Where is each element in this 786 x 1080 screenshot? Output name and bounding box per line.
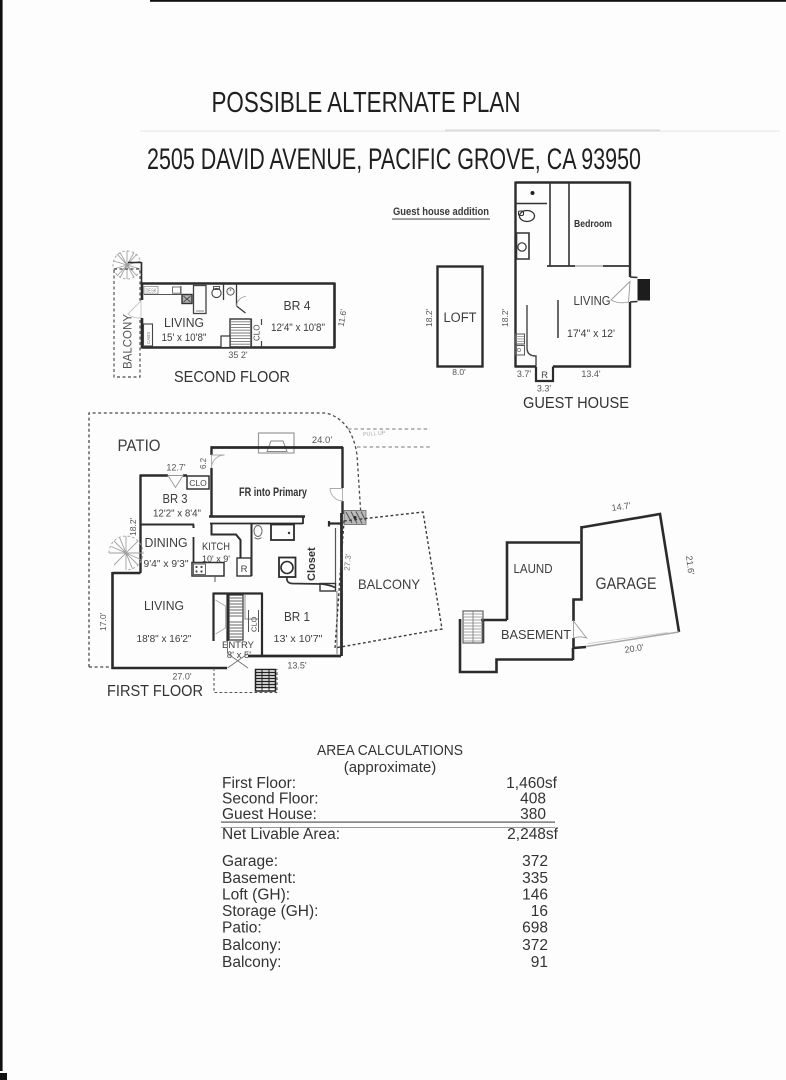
svg-text:Patio:: Patio: bbox=[222, 920, 262, 937]
svg-text:FR into Primary: FR into Primary bbox=[239, 487, 307, 499]
svg-text:FIRST FLOOR: FIRST FLOOR bbox=[107, 683, 203, 700]
svg-text:6.2: 6.2 bbox=[199, 457, 208, 469]
svg-text:LIVING: LIVING bbox=[144, 599, 184, 613]
svg-text:2505 DAVID AVENUE, PACIFIC GRO: 2505 DAVID AVENUE, PACIFIC GROVE, CA 939… bbox=[147, 143, 641, 176]
svg-text:(approximate): (approximate) bbox=[344, 759, 437, 776]
svg-text:SECOND FLOOR: SECOND FLOOR bbox=[174, 369, 290, 386]
svg-text:18'8" x 16'2": 18'8" x 16'2" bbox=[137, 633, 192, 645]
svg-text:PULL UP: PULL UP bbox=[363, 430, 386, 438]
svg-text:POSSIBLE ALTERNATE PLAN: POSSIBLE ALTERNATE PLAN bbox=[212, 87, 521, 119]
svg-text:335: 335 bbox=[522, 870, 548, 887]
svg-text:13' x 10'7": 13' x 10'7" bbox=[274, 633, 323, 645]
svg-text:KITCH: KITCH bbox=[202, 541, 230, 553]
svg-text:698: 698 bbox=[522, 920, 548, 937]
svg-text:LIVING: LIVING bbox=[574, 293, 611, 308]
svg-text:Basement:: Basement: bbox=[222, 870, 296, 887]
svg-text:20.0': 20.0' bbox=[624, 642, 645, 655]
svg-text:Closet: Closet bbox=[306, 547, 318, 581]
svg-text:CABS: CABS bbox=[146, 332, 151, 344]
svg-text:17'4" x 12': 17'4" x 12' bbox=[567, 328, 615, 340]
svg-text:12.7': 12.7' bbox=[166, 463, 186, 473]
svg-text:11.6': 11.6' bbox=[336, 308, 349, 327]
svg-text:BR 1: BR 1 bbox=[284, 609, 310, 624]
svg-text:24.0': 24.0' bbox=[312, 435, 332, 446]
svg-text:PATIO: PATIO bbox=[118, 437, 161, 455]
svg-text:Guest House:: Guest House: bbox=[222, 806, 317, 823]
svg-text:3.3': 3.3' bbox=[537, 384, 552, 394]
svg-text:27.3': 27.3' bbox=[343, 553, 353, 571]
svg-text:CLO: CLO bbox=[250, 616, 259, 632]
svg-text:Loft (GH):: Loft (GH): bbox=[222, 887, 290, 904]
svg-text:21.6': 21.6' bbox=[684, 555, 696, 576]
svg-text:408: 408 bbox=[520, 791, 546, 808]
svg-text:27.0': 27.0' bbox=[172, 672, 192, 682]
svg-text:BR 4: BR 4 bbox=[284, 298, 311, 313]
svg-text:BALCONY: BALCONY bbox=[358, 576, 421, 592]
svg-text:Balcony:: Balcony: bbox=[222, 954, 281, 971]
svg-text:15' x 10'8": 15' x 10'8" bbox=[162, 332, 207, 344]
svg-text:18.2': 18.2' bbox=[128, 517, 138, 536]
svg-text:GUEST HOUSE: GUEST HOUSE bbox=[523, 395, 629, 412]
svg-text:Bedroom: Bedroom bbox=[574, 218, 612, 230]
svg-text:8.0': 8.0' bbox=[452, 367, 466, 377]
svg-text:LIVING: LIVING bbox=[164, 315, 204, 330]
svg-text:16: 16 bbox=[531, 903, 548, 920]
svg-text:146: 146 bbox=[522, 887, 548, 904]
svg-text:91: 91 bbox=[531, 954, 548, 971]
svg-text:DINING: DINING bbox=[145, 536, 188, 550]
svg-text:Garage:: Garage: bbox=[222, 853, 278, 870]
svg-text:CLO: CLO bbox=[189, 478, 207, 488]
svg-text:12'2" x 8'4": 12'2" x 8'4" bbox=[153, 508, 201, 520]
svg-text:DESK: DESK bbox=[146, 288, 158, 294]
svg-text:18.2': 18.2' bbox=[424, 308, 434, 327]
svg-text:3.7': 3.7' bbox=[517, 369, 532, 379]
svg-text:Guest house addition: Guest house addition bbox=[393, 206, 489, 218]
svg-text:12'4" x 10'8": 12'4" x 10'8" bbox=[271, 322, 325, 334]
svg-text:14.7': 14.7' bbox=[611, 500, 632, 513]
svg-text:BR 3: BR 3 bbox=[163, 491, 188, 506]
svg-text:10' x 9': 10' x 9' bbox=[202, 554, 230, 565]
svg-text:380: 380 bbox=[520, 806, 546, 823]
svg-text:372: 372 bbox=[522, 853, 548, 870]
svg-text:LOFT: LOFT bbox=[444, 310, 477, 325]
svg-text:R: R bbox=[541, 370, 548, 381]
svg-text:First Floor:: First Floor: bbox=[222, 775, 296, 792]
svg-text:R: R bbox=[241, 564, 248, 575]
svg-text:13.4': 13.4' bbox=[581, 369, 601, 379]
svg-text:9'4" x 9'3": 9'4" x 9'3" bbox=[144, 558, 189, 570]
svg-text:AREA CALCULATIONS: AREA CALCULATIONS bbox=[317, 742, 463, 759]
svg-text:Net Livable Area:: Net Livable Area: bbox=[222, 826, 340, 843]
svg-text:LAUND: LAUND bbox=[514, 562, 553, 576]
svg-text:18.2': 18.2' bbox=[500, 308, 510, 327]
svg-text:Balcony:: Balcony: bbox=[222, 937, 281, 954]
svg-text:1,460sf: 1,460sf bbox=[506, 775, 558, 792]
svg-text:CLO: CLO bbox=[253, 325, 262, 341]
svg-text:BASEMENT: BASEMENT bbox=[501, 628, 571, 642]
svg-text:GARAGE: GARAGE bbox=[596, 575, 657, 593]
svg-text:2,248sf: 2,248sf bbox=[507, 826, 559, 843]
svg-text:Storage (GH):: Storage (GH): bbox=[222, 903, 318, 920]
svg-text:BALCONY: BALCONY bbox=[123, 314, 135, 369]
svg-text:372: 372 bbox=[522, 937, 548, 954]
svg-text:17.0': 17.0' bbox=[98, 612, 108, 631]
svg-text:13.5': 13.5' bbox=[287, 661, 307, 671]
svg-text:35 2': 35 2' bbox=[228, 350, 248, 360]
svg-text:Second Floor:: Second Floor: bbox=[222, 791, 319, 808]
